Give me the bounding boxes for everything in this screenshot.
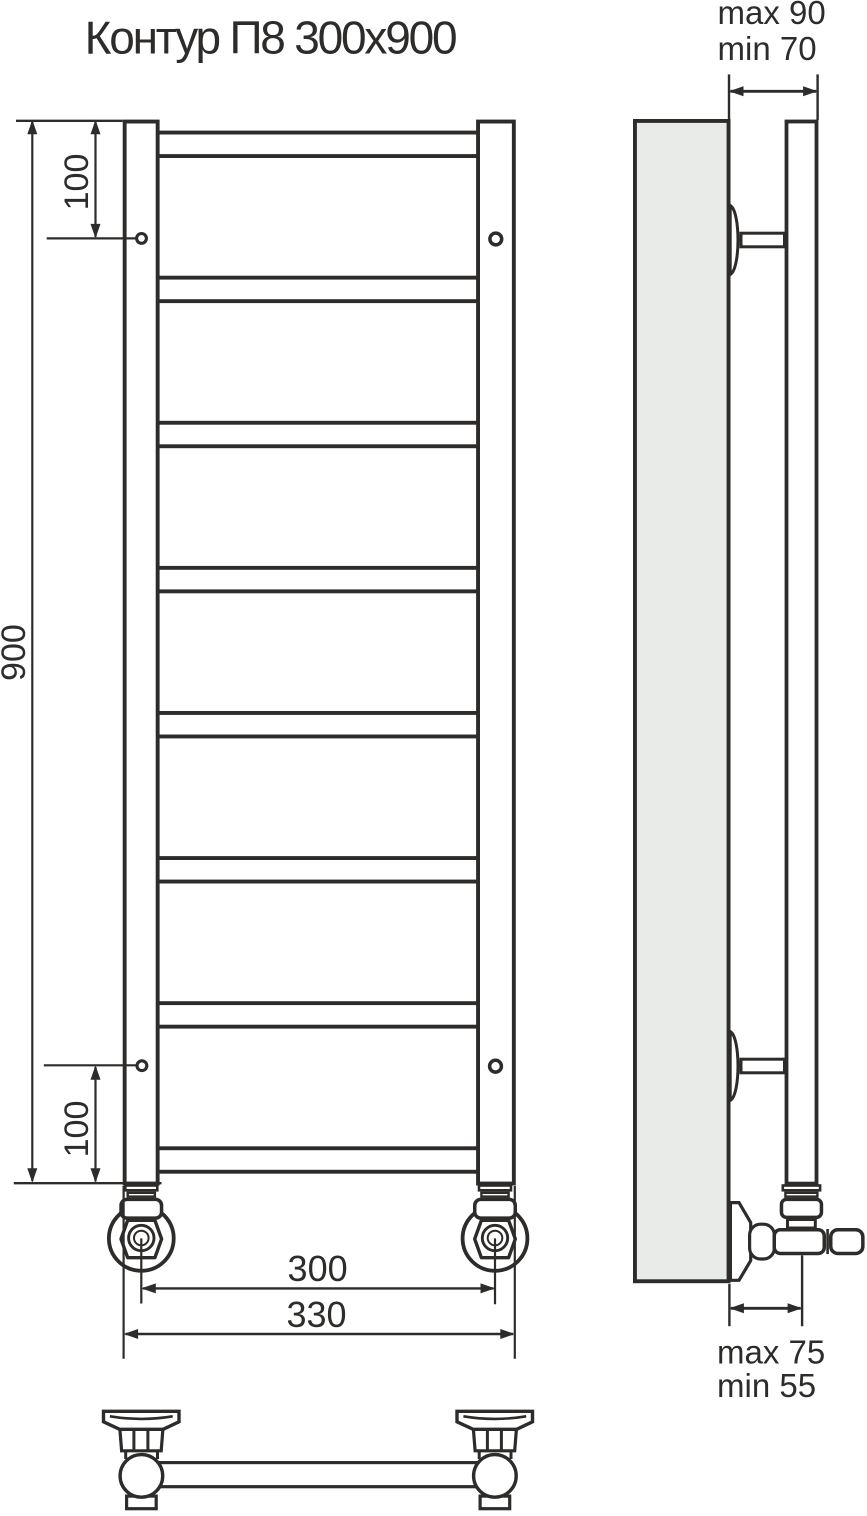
svg-text:300: 300 (288, 1248, 348, 1289)
svg-text:max 75: max 75 (717, 1333, 825, 1370)
svg-text:max 90: max 90 (718, 0, 826, 31)
svg-text:min 55: min 55 (717, 1367, 816, 1404)
svg-text:Контур П8 300х900: Контур П8 300х900 (85, 12, 456, 64)
svg-text:100: 100 (58, 154, 96, 211)
svg-text:100: 100 (58, 1101, 96, 1158)
svg-text:900: 900 (0, 624, 33, 681)
svg-text:min 70: min 70 (718, 30, 817, 67)
svg-text:330: 330 (286, 1294, 346, 1335)
